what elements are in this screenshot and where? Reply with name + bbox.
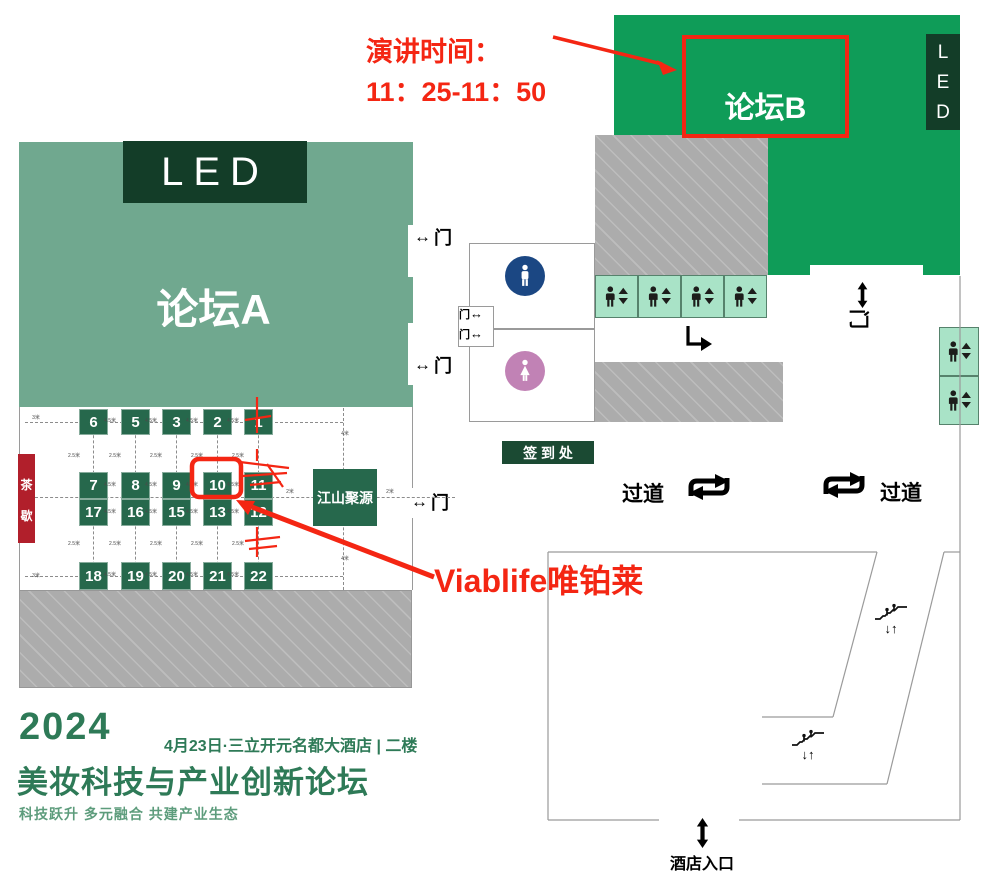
up-down-text: ↓↑ xyxy=(791,747,825,762)
dimension-label: 4.5米 xyxy=(186,481,198,488)
dimension-label: 2.5米 xyxy=(150,452,162,459)
booth-callout-label: Viablife唯铂莱 xyxy=(434,556,643,602)
forum-a-wall-tab xyxy=(408,142,413,225)
forum-b-label: 论坛B xyxy=(684,83,847,127)
event-date-venue: 4月23日·三立开元名都大酒店 | 二楼 xyxy=(164,732,417,756)
dimension-label: 2.5米 xyxy=(191,540,203,547)
forum-a-led-screen: LED xyxy=(123,141,307,203)
forum-b-led-screen: L E D xyxy=(926,34,960,130)
dimension-label: 4.5米 xyxy=(227,571,239,578)
led-letter: E xyxy=(926,68,960,98)
dimension-label: 4.5米 xyxy=(104,508,116,515)
dimension-label: 4.5米 xyxy=(145,481,157,488)
hatched-block-upper xyxy=(595,135,768,275)
event-year: 2024 xyxy=(19,706,112,749)
dimension-label: 4.5米 xyxy=(104,417,116,424)
dimension-label: 2.5米 xyxy=(68,452,80,459)
male-icon xyxy=(516,264,534,288)
dimension-label: 4.5米 xyxy=(104,571,116,578)
forum-a-label: 论坛A xyxy=(19,276,408,337)
forum-a-door-lower: ↔ 门 xyxy=(414,352,452,378)
dimension-label: 4.5米 xyxy=(145,508,157,515)
dimension-label: 4.5米 xyxy=(145,571,157,578)
double-arrow-icon: ↔ xyxy=(470,326,483,341)
speech-time-label: 演讲时间： xyxy=(366,30,501,69)
dimension-label: 2米 xyxy=(286,488,294,495)
led-letter: L xyxy=(926,38,960,68)
hall-right-wall xyxy=(412,407,413,488)
escalator-icon xyxy=(791,727,825,747)
escalator-lower: ↓↑ xyxy=(791,727,825,762)
dimension-label: 4.5米 xyxy=(227,508,239,515)
venue-floor-plan: LED 论坛A L E D 论坛B 门↔ 门↔ ↔ 门 ↔ 门 ↔ 门 xyxy=(0,0,992,879)
tea-break-area: 茶歇 xyxy=(18,454,35,543)
lobby-outline xyxy=(540,270,970,830)
hall-left-wall xyxy=(19,407,20,688)
dimension-label: 2.5米 xyxy=(191,452,203,459)
booth-12: 12 xyxy=(244,499,273,526)
dimension-label: 2米 xyxy=(386,488,394,495)
hotel-entrance-arrow-icon xyxy=(695,818,710,848)
hall-right-wall xyxy=(412,518,413,590)
dimension-label: 4.5米 xyxy=(186,571,198,578)
escalator-icon xyxy=(874,601,908,621)
up-down-text: ↓↑ xyxy=(874,621,908,636)
restroom-door-label: 门↔ xyxy=(459,326,483,342)
double-arrow-icon: ↔ xyxy=(414,355,431,375)
dimension-label: 2.5米 xyxy=(232,452,244,459)
women-restroom-sign xyxy=(505,351,545,391)
forum-a-wall-tab xyxy=(408,277,413,323)
dimension-label: 2.5米 xyxy=(232,540,244,547)
dimension-label: 2.5米 xyxy=(150,540,162,547)
hotel-entrance-label: 酒店入口 xyxy=(662,850,742,874)
escalator-upper: ↓↑ xyxy=(874,601,908,636)
led-letter: D xyxy=(926,98,960,128)
dimension-label: 3米 xyxy=(32,414,40,421)
dimension-label: 4米 xyxy=(341,430,349,437)
dimension-label: 2.5米 xyxy=(109,540,121,547)
dimension-label: 2.5米 xyxy=(68,540,80,547)
event-title: 美妆科技与产业创新论坛 xyxy=(17,757,369,802)
dimension-label: 4.5米 xyxy=(104,481,116,488)
booth-22: 22 xyxy=(244,562,273,590)
booth-jiangshanjuyuan: 江山聚源 xyxy=(313,469,377,526)
double-arrow-icon: ↔ xyxy=(470,306,483,321)
booth-1: 1 xyxy=(244,409,273,435)
forum-a-wall-tab xyxy=(408,385,413,407)
booth-11: 11 xyxy=(244,472,273,499)
dimension-label: 2.5米 xyxy=(109,452,121,459)
dimension-label: 3米 xyxy=(32,572,40,579)
female-icon xyxy=(516,359,534,383)
dimension-label: 4.5米 xyxy=(186,417,198,424)
double-arrow-icon: ↔ xyxy=(414,227,431,247)
dimension-label: 4.5米 xyxy=(227,481,239,488)
forum-a-door-upper: ↔ 门 xyxy=(414,224,452,250)
hatched-block-bottom xyxy=(19,590,412,688)
men-restroom-sign xyxy=(505,256,545,296)
hall-right-door: ↔ 门 xyxy=(411,489,449,515)
dimension-label: 4.5米 xyxy=(186,508,198,515)
dimension-label: 4米 xyxy=(341,555,349,562)
double-arrow-icon: ↔ xyxy=(411,492,428,512)
dimension-label: 4.5米 xyxy=(145,417,157,424)
speech-time-value: 11：25-11：50 xyxy=(366,70,546,109)
event-slogan: 科技跃升 多元融合 共建产业生态 xyxy=(19,804,239,824)
dimension-label: 4.5米 xyxy=(227,417,239,424)
restroom-door-label: 门↔ xyxy=(459,306,483,322)
